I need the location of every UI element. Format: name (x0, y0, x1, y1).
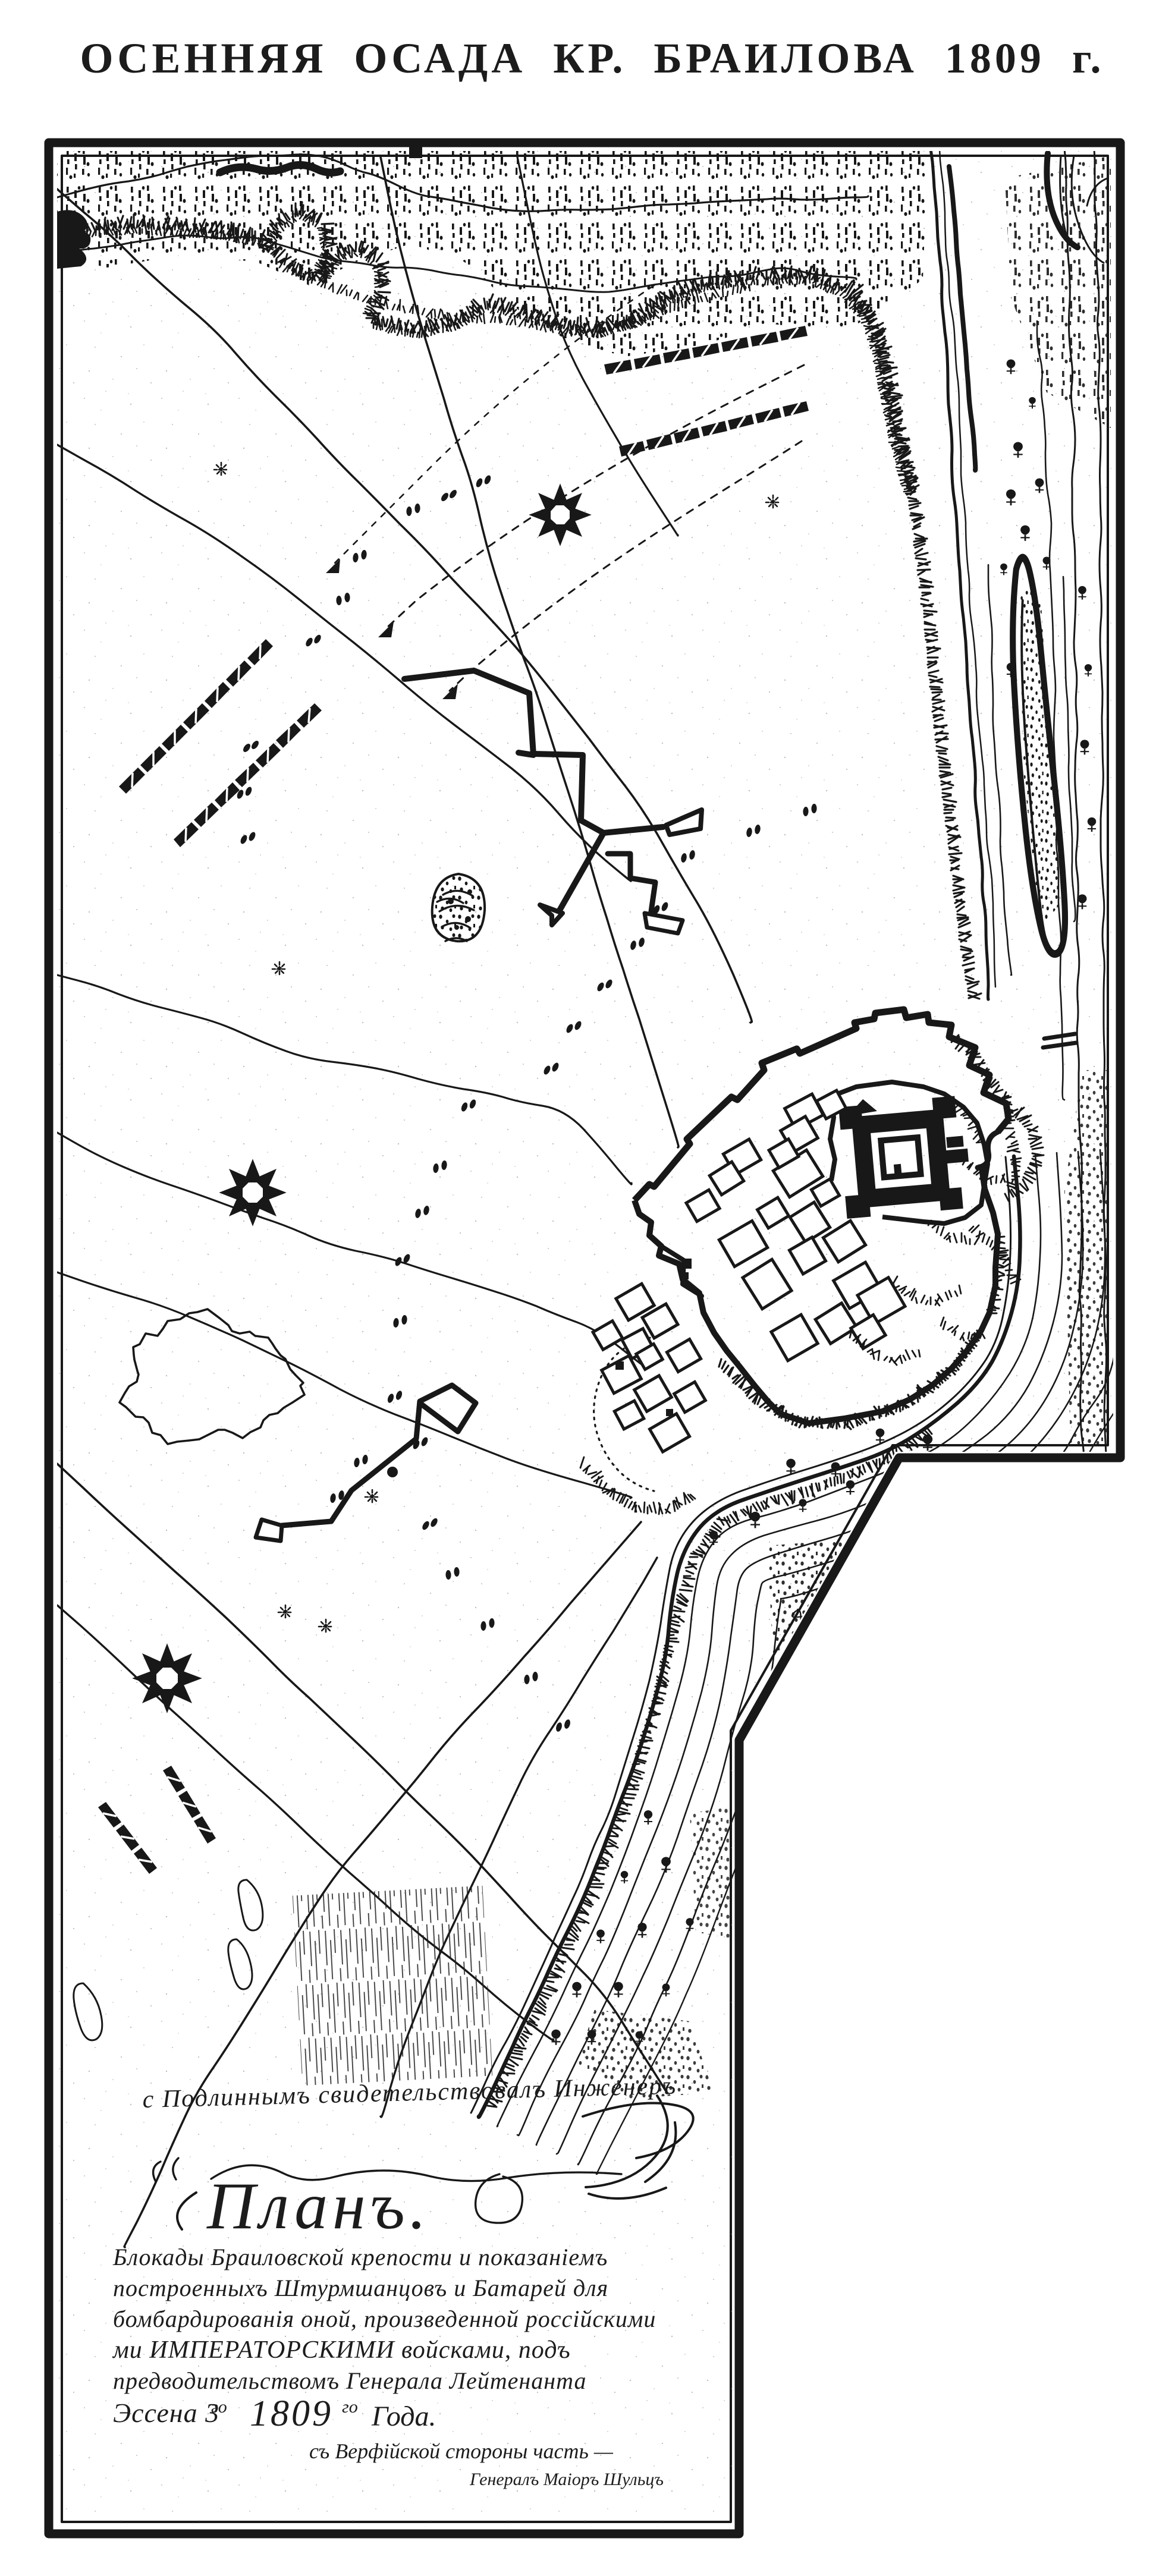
svg-text:Генералъ Маіоръ Шульцъ: Генералъ Маіоръ Шульцъ (469, 2470, 664, 2489)
svg-text:ОСЕННЯЯ ОСАДА КР. БРАИЛОВА 180: ОСЕННЯЯ ОСАДА КР. БРАИЛОВА 1809 г. (80, 34, 1105, 82)
svg-text:бомбардированія оной, произвед: бомбардированія оной, произведенной росс… (113, 2305, 656, 2332)
svg-text:ми ИМПЕРАТОРСКИМИ войсками, по: ми ИМПЕРАТОРСКИМИ войсками, подъ (112, 2336, 571, 2364)
svg-text:предводительствомъ Генерала Ле: предводительствомъ Генерала Лейтенанта (113, 2367, 586, 2394)
svg-text:Планъ.: Планъ. (206, 2169, 431, 2243)
svg-text:Эссена 3: Эссена 3 (113, 2398, 219, 2428)
svg-text:Года.: Года. (371, 2401, 436, 2432)
svg-text:го: го (211, 2397, 227, 2417)
svg-text:го: го (342, 2397, 358, 2417)
svg-text:1809: 1809 (250, 2393, 333, 2434)
svg-text:съ Верфійской стороны часть —: съ Верфійской стороны часть — (309, 2439, 614, 2463)
svg-text:Блокады Браиловской крепости и: Блокады Браиловской крепости и показаніе… (112, 2244, 608, 2270)
svg-text:построенныхъ Штурмшанцовъ и Ба: построенныхъ Штурмшанцовъ и Батарей для (113, 2275, 608, 2301)
